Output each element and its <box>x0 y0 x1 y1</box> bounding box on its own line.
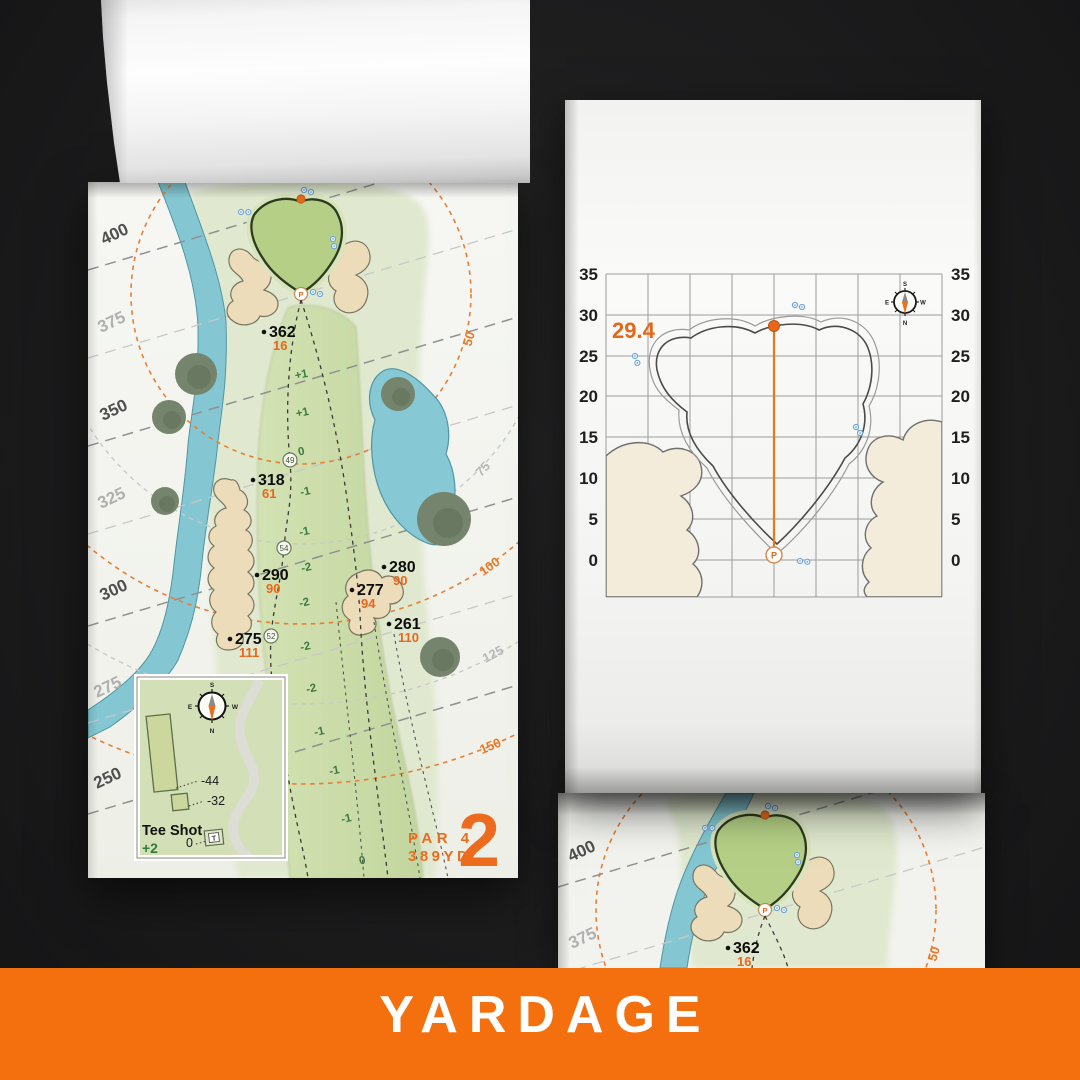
hole-map-page: P <box>88 182 518 878</box>
svg-text:30: 30 <box>951 306 970 325</box>
tree-icon <box>381 377 415 411</box>
svg-text:20: 20 <box>579 387 598 406</box>
tree-icon <box>420 637 460 677</box>
bunker-left <box>606 443 702 597</box>
yardage-banner: YARDAGE <box>0 968 1080 1080</box>
waypoint-circle: 49 <box>283 453 297 467</box>
svg-text:0: 0 <box>589 551 598 570</box>
svg-text:90: 90 <box>393 573 407 588</box>
compass-icon: S N E W <box>885 282 926 327</box>
tee-marker: T <box>204 829 223 846</box>
svg-text:61: 61 <box>262 486 276 501</box>
svg-text:W: W <box>232 704 239 711</box>
svg-text:52: 52 <box>267 632 276 641</box>
svg-text:N: N <box>903 321 907 327</box>
svg-text:15: 15 <box>579 428 598 447</box>
svg-text:111: 111 <box>239 645 259 660</box>
waypoint-circle: 52 <box>264 629 278 643</box>
tree-icon <box>152 400 186 434</box>
axis-ticks-right: 3530 2520 1510 50 <box>951 265 970 570</box>
pin-label: P <box>771 551 777 561</box>
carry-label: -44 <box>201 774 219 788</box>
depth-value: 29.4 <box>612 318 656 343</box>
svg-text:90: 90 <box>266 581 280 596</box>
svg-text:5: 5 <box>951 510 960 529</box>
axis-ticks-left: 3530 2520 1510 50 <box>579 265 598 570</box>
tree-icon <box>175 353 217 395</box>
hole-number: 2 <box>458 798 500 878</box>
inset-title: Tee Shot <box>142 823 202 839</box>
banner-title: YARDAGE <box>368 985 711 1045</box>
svg-text:N: N <box>210 728 215 735</box>
svg-text:20: 20 <box>951 387 970 406</box>
svg-text:35: 35 <box>579 265 598 284</box>
green-detail-page: 3530 2520 1510 50 3530 2520 1510 50 P 29… <box>565 100 981 793</box>
svg-text:0: 0 <box>951 551 960 570</box>
tee-shot-inset: S N E W -44 -32 0 T Tee Shot <box>137 677 285 858</box>
hole-map: P <box>88 182 518 878</box>
svg-text:110: 110 <box>398 630 419 645</box>
tee-box-small <box>171 793 189 811</box>
carry-label: -32 <box>207 794 225 808</box>
tree-icon <box>151 487 179 515</box>
tree-icon <box>417 492 471 546</box>
svg-text:16: 16 <box>273 338 287 353</box>
depth-dot <box>769 321 780 332</box>
svg-text:94: 94 <box>361 596 376 611</box>
bunker-right <box>862 420 942 597</box>
flipped-page <box>94 0 530 183</box>
svg-text:10: 10 <box>579 469 598 488</box>
svg-text:10: 10 <box>951 469 970 488</box>
next-map-page: 362 16 400 375 50 <box>558 793 985 968</box>
waypoint-circle: 54 <box>277 541 291 555</box>
svg-text:5: 5 <box>589 510 598 529</box>
svg-text:S: S <box>903 282 907 288</box>
green-detail-chart: 3530 2520 1510 50 3530 2520 1510 50 P 29… <box>565 100 981 793</box>
svg-text:S: S <box>210 682 215 689</box>
svg-text:49: 49 <box>286 456 295 465</box>
svg-text:54: 54 <box>280 544 289 553</box>
next-hole-map: 362 16 400 375 50 <box>558 793 985 968</box>
svg-text:E: E <box>188 704 193 711</box>
svg-text:25: 25 <box>579 347 598 366</box>
inset-elevation: +2 <box>142 840 158 856</box>
yardage-book-product-photo: P <box>0 0 1080 1080</box>
svg-text:W: W <box>920 301 926 307</box>
svg-text:25: 25 <box>951 347 970 366</box>
svg-text:16: 16 <box>737 954 751 968</box>
svg-text:35: 35 <box>951 265 970 284</box>
svg-text:30: 30 <box>579 306 598 325</box>
svg-text:15: 15 <box>951 428 970 447</box>
svg-text:E: E <box>885 301 889 307</box>
